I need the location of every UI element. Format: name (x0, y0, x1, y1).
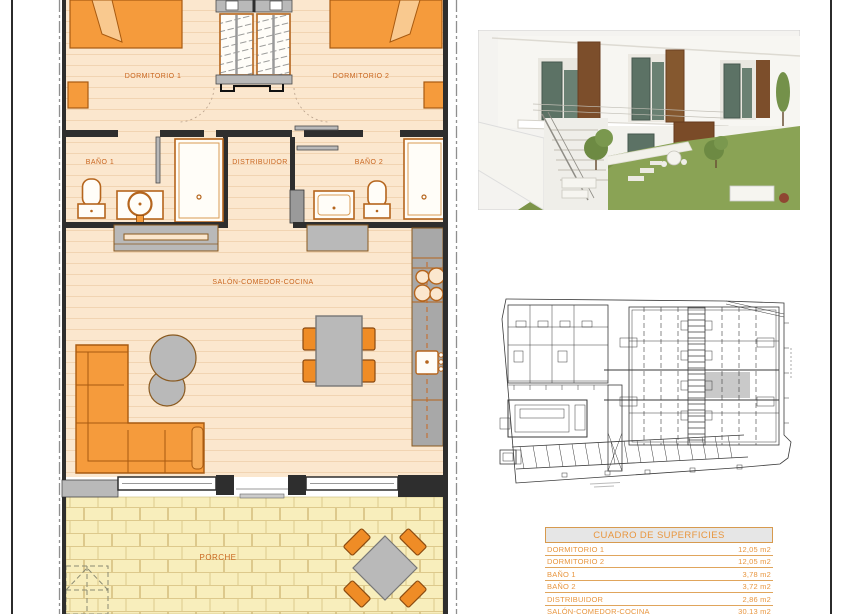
row-label: DORMITORIO 2 (545, 555, 686, 568)
table-row: DISTRIBUIDOR 2,86 m2 (545, 593, 773, 606)
corten-panel (578, 42, 600, 122)
wall-left (62, 0, 66, 480)
room-label-porche: PORCHE (200, 553, 237, 562)
shower-1 (175, 139, 223, 222)
kitchen-counter (412, 228, 445, 446)
site-edge-marks (562, 323, 791, 487)
room-label-dormitorio-1: DORMITORIO 1 (125, 73, 182, 80)
sheet-border-right (830, 0, 832, 614)
room-label-bano-2: BAÑO 2 (355, 157, 383, 166)
floor-plan-drawing: DORMITORIO 1 DORMITORIO 2 BAÑO 1 DISTRIB… (0, 0, 470, 614)
surfaces-table: CUADRO DE SUPERFICIES DORMITORIO 1 12,05… (545, 527, 773, 614)
porch-table-set (343, 528, 427, 608)
room-label-salon: SALÓN-COMEDOR-COCINA (212, 277, 313, 286)
corten-panel (666, 50, 684, 122)
row-value: 2,86 m2 (686, 593, 773, 606)
surfaces-table-grid: DORMITORIO 1 12,05 m2 DORMITORIO 2 12,05… (545, 543, 773, 614)
door-step (240, 494, 284, 498)
shower-2 (404, 139, 445, 219)
row-value: 30,13 m2 (686, 605, 773, 614)
glass-panel (564, 70, 578, 120)
table-row: SALÓN-COMEDOR-COCINA 30,13 m2 (545, 605, 773, 614)
row-value: 3,78 m2 (686, 568, 773, 581)
site-right-building (604, 307, 779, 445)
bed-1 (70, 0, 182, 48)
toilet-2 (368, 181, 386, 207)
sideboard (307, 225, 368, 251)
glass-panel (652, 62, 664, 120)
bath2-door-leaf (297, 146, 338, 150)
plan-sheet-page: DORMITORIO 1 DORMITORIO 2 BAÑO 1 DISTRIB… (0, 0, 850, 614)
exterior-render-illustration (478, 30, 800, 210)
site-pool (500, 400, 587, 437)
nightstand-2 (424, 82, 444, 108)
wall-right (443, 0, 448, 475)
row-label: BAÑO 2 (545, 580, 686, 593)
row-label: BAÑO 1 (545, 568, 686, 581)
wall-left-porch (62, 497, 66, 614)
site-plan-drawing (494, 293, 794, 500)
row-value: 12,05 m2 (686, 555, 773, 568)
central-stairs (688, 307, 705, 445)
row-label: DISTRIBUIDOR (545, 593, 686, 606)
tv-cabinet (114, 225, 218, 251)
table-row: BAÑO 1 3,78 m2 (545, 568, 773, 581)
room-label-bano-1: BAÑO 1 (86, 157, 114, 166)
row-label: DORMITORIO 1 (545, 543, 686, 555)
wall-right-porch (443, 497, 448, 614)
room-label-dormitorio-2: DORMITORIO 2 (333, 73, 390, 80)
glass-panel (724, 64, 740, 118)
floor-plan: DORMITORIO 1 DORMITORIO 2 BAÑO 1 DISTRIB… (0, 0, 470, 614)
table-row: BAÑO 2 3,72 m2 (545, 580, 773, 593)
wall-pier-bath2 (290, 190, 304, 223)
glass-panel (632, 58, 650, 120)
corten-panel (756, 60, 770, 118)
glass-panel (742, 68, 752, 118)
bath2-door-track (295, 126, 338, 130)
wall-bath2-hall (290, 137, 295, 197)
row-label: SALÓN-COMEDOR-COCINA (545, 605, 686, 614)
bath1-door-leaf (156, 137, 160, 183)
table-row: DORMITORIO 1 12,05 m2 (545, 543, 773, 555)
room-label-distribuidor: DISTRIBUIDOR (232, 159, 288, 166)
table-row: DORMITORIO 2 12,05 m2 (545, 555, 773, 568)
bed-2 (330, 0, 442, 48)
site-small-block (500, 450, 521, 464)
red-plant (779, 193, 789, 203)
boundary-notch (726, 301, 784, 317)
kitchen-sink (416, 351, 443, 374)
site-parking-row (512, 435, 748, 469)
site-plan-svg (494, 293, 794, 500)
nightstand-1 (68, 82, 88, 108)
toilet-1 (83, 179, 101, 206)
row-value: 12,05 m2 (686, 543, 773, 555)
surfaces-table-title: CUADRO DE SUPERFICIES (545, 527, 773, 543)
exterior-render-svg (478, 30, 800, 210)
wall-salon-porch (62, 475, 448, 498)
row-value: 3,72 m2 (686, 580, 773, 593)
site-left-building (508, 305, 608, 390)
